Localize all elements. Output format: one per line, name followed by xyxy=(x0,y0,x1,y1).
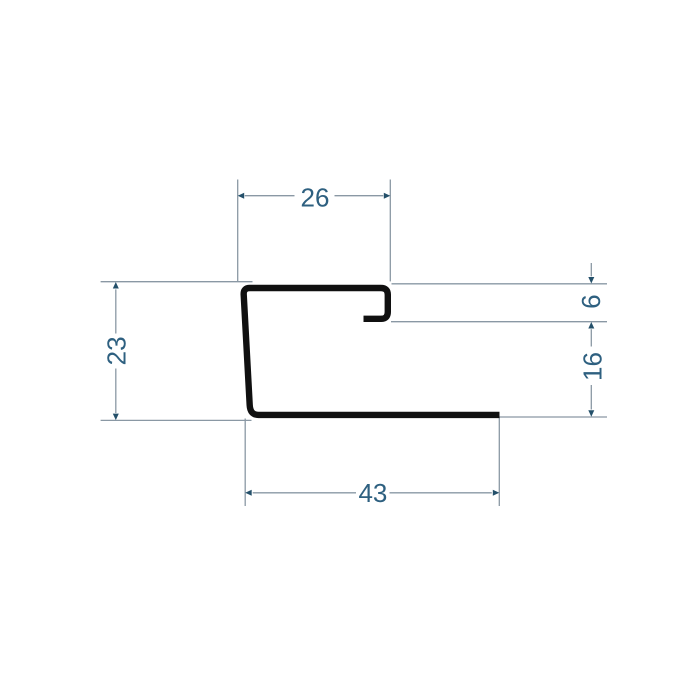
svg-text:16: 16 xyxy=(578,352,608,381)
svg-text:26: 26 xyxy=(301,182,330,212)
svg-text:43: 43 xyxy=(358,478,387,508)
svg-text:6: 6 xyxy=(576,294,606,308)
svg-text:23: 23 xyxy=(101,336,131,365)
